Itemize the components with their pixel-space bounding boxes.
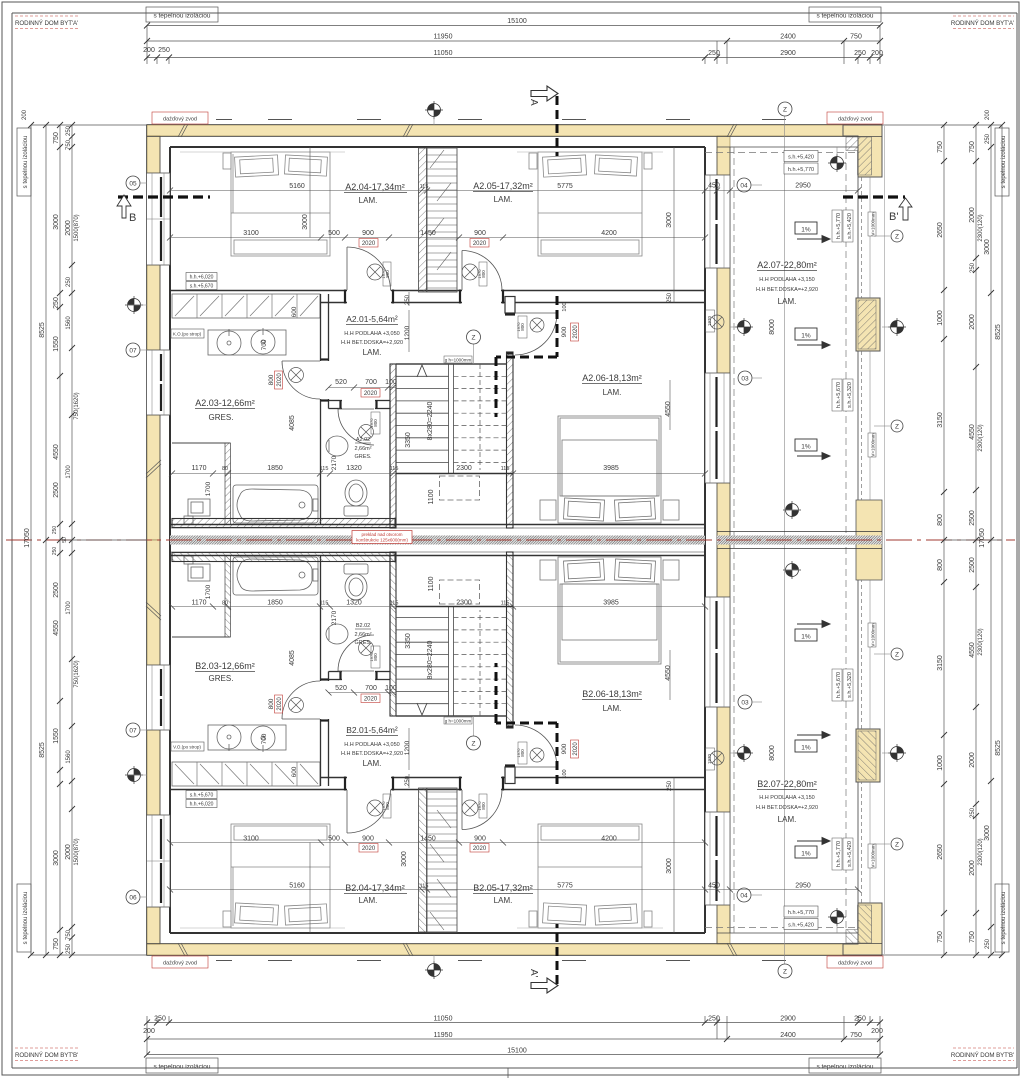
svg-text:B2.04-17,34m²: B2.04-17,34m² — [345, 883, 405, 893]
svg-text:4550: 4550 — [665, 665, 672, 681]
svg-text:RODINNÝ DOM BYT'A': RODINNÝ DOM BYT'A' — [15, 20, 78, 27]
svg-text:1%: 1% — [801, 333, 811, 340]
svg-text:1%: 1% — [801, 634, 811, 641]
svg-text:1450: 1450 — [420, 230, 436, 237]
svg-text:2170: 2170 — [331, 455, 338, 470]
svg-text:LAM.: LAM. — [359, 196, 378, 205]
svg-text:1970: 1970 — [381, 801, 386, 811]
svg-text:4200: 4200 — [601, 230, 617, 237]
svg-text:2400: 2400 — [780, 34, 796, 41]
svg-text:900: 900 — [362, 836, 374, 843]
svg-text:1970: 1970 — [516, 748, 521, 758]
svg-text:4085: 4085 — [289, 415, 296, 431]
svg-text:15100: 15100 — [507, 1048, 527, 1055]
svg-text:750: 750 — [937, 931, 944, 943]
svg-text:1700: 1700 — [66, 601, 72, 615]
svg-text:8x280=2240: 8x280=2240 — [427, 641, 434, 680]
svg-text:1850: 1850 — [267, 600, 283, 607]
svg-text:Z: Z — [895, 234, 899, 241]
svg-text:H.H BET.DOSKA=+2,920: H.H BET.DOSKA=+2,920 — [341, 340, 403, 346]
svg-text:RODINNÝ DOM BYT'B': RODINNÝ DOM BYT'B' — [951, 1052, 1014, 1059]
svg-text:200: 200 — [871, 1028, 883, 1035]
svg-text:1200: 1200 — [404, 325, 411, 340]
svg-text:3000: 3000 — [666, 858, 673, 874]
svg-text:200: 200 — [871, 50, 883, 57]
svg-text:3000: 3000 — [666, 212, 673, 228]
svg-text:4550: 4550 — [665, 401, 672, 417]
svg-text:B2.03-12,66m²: B2.03-12,66m² — [195, 661, 255, 671]
svg-text:250: 250 — [985, 133, 991, 144]
svg-text:2950: 2950 — [795, 183, 811, 190]
svg-text:s tepelnou izoláciou: s tepelnou izoláciou — [816, 13, 873, 20]
svg-text:1320: 1320 — [346, 600, 362, 607]
svg-text:900: 900 — [561, 326, 568, 337]
svg-text:4550: 4550 — [53, 444, 60, 460]
svg-text:3000: 3000 — [53, 214, 60, 230]
svg-text:2020: 2020 — [362, 241, 376, 247]
svg-text:2650: 2650 — [937, 844, 944, 860]
svg-text:2020: 2020 — [364, 697, 378, 703]
svg-text:1500(870): 1500(870) — [74, 838, 80, 865]
svg-text:900: 900 — [474, 230, 486, 237]
svg-text:A2.04-17,34m²: A2.04-17,34m² — [345, 182, 405, 192]
svg-text:250: 250 — [708, 1016, 720, 1023]
svg-text:s.h.+5,670: s.h.+5,670 — [190, 284, 214, 290]
svg-text:A2.06-18,13m²: A2.06-18,13m² — [582, 373, 642, 383]
svg-text:11050: 11050 — [434, 1016, 453, 1023]
svg-text:1970: 1970 — [369, 652, 374, 662]
svg-text:3000: 3000 — [984, 825, 991, 841]
svg-text:250: 250 — [854, 50, 866, 57]
svg-text:17050: 17050 — [24, 528, 31, 548]
svg-text:2000: 2000 — [65, 844, 72, 860]
svg-text:RODINNÝ DOM BYT'B': RODINNÝ DOM BYT'B' — [15, 1052, 78, 1059]
svg-text:200: 200 — [22, 109, 28, 120]
svg-text:s tepelnou izoláciou: s tepelnou izoláciou — [23, 892, 29, 945]
svg-text:s.h.+5,420: s.h.+5,420 — [788, 155, 814, 161]
svg-text:H.H BET.DOSKA=+2,920: H.H BET.DOSKA=+2,920 — [341, 751, 403, 757]
svg-text:450: 450 — [708, 883, 720, 890]
svg-text:1500(870): 1500(870) — [74, 214, 80, 241]
svg-text:2170: 2170 — [331, 610, 338, 625]
svg-text:2400: 2400 — [780, 1032, 796, 1039]
svg-text:11050: 11050 — [434, 50, 453, 57]
svg-text:V.O.(po strop): V.O.(po strop) — [173, 745, 201, 750]
svg-text:2020: 2020 — [473, 846, 487, 852]
svg-text:1850: 1850 — [267, 465, 283, 472]
svg-text:115: 115 — [320, 466, 329, 472]
svg-text:V=1000mm: V=1000mm — [871, 844, 876, 867]
svg-text:1550: 1550 — [53, 336, 60, 352]
svg-text:LAM.: LAM. — [494, 896, 513, 905]
svg-text:2650: 2650 — [937, 222, 944, 238]
svg-text:2020: 2020 — [362, 846, 376, 852]
svg-text:2300(120): 2300(120) — [978, 424, 984, 451]
svg-text:1700: 1700 — [205, 584, 212, 599]
svg-text:h.h.+5,770: h.h.+5,770 — [788, 167, 814, 173]
svg-text:4550: 4550 — [53, 620, 60, 636]
svg-text:800: 800 — [268, 374, 275, 385]
svg-text:100: 100 — [385, 685, 397, 692]
svg-text:Z: Z — [895, 842, 899, 849]
svg-text:520: 520 — [335, 685, 347, 692]
svg-text:8525: 8525 — [39, 322, 46, 338]
svg-text:900: 900 — [561, 743, 568, 754]
svg-text:11950: 11950 — [434, 1032, 453, 1039]
svg-text:5160: 5160 — [289, 883, 305, 890]
svg-text:5775: 5775 — [557, 883, 573, 890]
svg-text:H.H BET.DOSKA=+2,920: H.H BET.DOSKA=+2,920 — [756, 805, 818, 811]
svg-text:LAM.: LAM. — [494, 195, 513, 204]
svg-text:LAM.: LAM. — [778, 297, 797, 306]
svg-text:3985: 3985 — [603, 600, 619, 607]
svg-text:2020: 2020 — [277, 697, 283, 711]
svg-text:s.h.+5,320: s.h.+5,320 — [847, 382, 853, 408]
svg-text:2500: 2500 — [53, 582, 60, 598]
svg-text:2000: 2000 — [969, 752, 976, 768]
svg-text:Z: Z — [472, 741, 476, 748]
svg-text:8000: 8000 — [769, 319, 776, 335]
svg-text:A2.02: A2.02 — [356, 437, 370, 443]
svg-text:1100: 1100 — [428, 489, 435, 504]
svg-text:s tepelnou izoláciou: s tepelnou izoláciou — [153, 1064, 210, 1071]
svg-text:s tepelnou izoláciou: s tepelnou izoláciou — [1001, 892, 1007, 945]
svg-text:s tepelnou izoláciou: s tepelnou izoláciou — [816, 1064, 873, 1071]
svg-text:s tepelnou izoláciou: s tepelnou izoláciou — [1001, 136, 1007, 189]
svg-text:3100: 3100 — [243, 836, 259, 843]
svg-text:06: 06 — [129, 895, 137, 902]
svg-text:115: 115 — [501, 601, 510, 607]
svg-text:B2.02: B2.02 — [356, 623, 370, 629]
svg-text:A: A — [528, 99, 539, 106]
svg-text:2000: 2000 — [969, 314, 976, 330]
svg-text:konštrukcie 125x600(mm): konštrukcie 125x600(mm) — [356, 538, 408, 543]
svg-text:250: 250 — [66, 943, 72, 954]
svg-text:2000: 2000 — [65, 220, 72, 236]
svg-text:H.H PODLAHA +3,050: H.H PODLAHA +3,050 — [344, 742, 400, 748]
svg-text:h.h.+5,770: h.h.+5,770 — [836, 841, 842, 867]
svg-text:h.h.+5,670: h.h.+5,670 — [836, 382, 842, 408]
svg-text:200: 200 — [143, 1028, 155, 1035]
svg-text:3985: 3985 — [603, 465, 619, 472]
svg-text:1550: 1550 — [53, 728, 60, 744]
svg-text:900: 900 — [474, 836, 486, 843]
svg-text:250: 250 — [52, 547, 58, 556]
svg-text:h.h.+5,770: h.h.+5,770 — [836, 213, 842, 239]
svg-text:H.H PODLAHA +3,150: H.H PODLAHA +3,150 — [759, 795, 815, 801]
svg-text:2020: 2020 — [364, 391, 378, 397]
svg-text:g h=1000mm: g h=1000mm — [445, 358, 472, 363]
svg-text:2900: 2900 — [780, 50, 796, 57]
svg-text:V=1000mm: V=1000mm — [871, 433, 876, 456]
svg-text:GRES.: GRES. — [354, 454, 372, 460]
svg-text:8x280=2240: 8x280=2240 — [427, 402, 434, 441]
svg-text:07: 07 — [129, 348, 137, 355]
svg-text:250: 250 — [66, 125, 72, 136]
svg-text:GRES.: GRES. — [354, 640, 372, 646]
svg-text:3150: 3150 — [937, 655, 944, 671]
svg-text:3000: 3000 — [53, 850, 60, 866]
svg-text:A2.05-17,32m²: A2.05-17,32m² — [473, 181, 533, 191]
svg-text:750: 750 — [53, 132, 60, 144]
svg-text:2000: 2000 — [969, 860, 976, 876]
svg-text:2020: 2020 — [277, 373, 283, 387]
svg-text:1970: 1970 — [707, 315, 712, 326]
svg-text:1170: 1170 — [191, 600, 206, 607]
svg-text:LAM.: LAM. — [778, 815, 797, 824]
svg-text:2020: 2020 — [573, 325, 579, 339]
svg-text:500: 500 — [328, 230, 340, 237]
svg-text:750(1620): 750(1620) — [74, 392, 80, 419]
svg-text:1700: 1700 — [205, 481, 212, 496]
svg-text:2300(120): 2300(120) — [978, 214, 984, 241]
svg-text:700: 700 — [365, 685, 377, 692]
svg-text:LAM.: LAM. — [359, 896, 378, 905]
svg-text:LAM.: LAM. — [603, 388, 622, 397]
svg-text:h.h.+5,770: h.h.+5,770 — [788, 910, 814, 916]
svg-text:700: 700 — [365, 379, 377, 386]
svg-text:80: 80 — [222, 466, 228, 472]
svg-text:250: 250 — [52, 526, 58, 535]
svg-text:daźďový zvod: daźďový zvod — [838, 961, 872, 967]
svg-text:daźďový zvod: daźďový zvod — [163, 117, 197, 123]
svg-text:B2.06-18,13m²: B2.06-18,13m² — [582, 689, 642, 699]
svg-text:s.h.+5,670: s.h.+5,670 — [190, 793, 214, 799]
svg-text:Z: Z — [783, 107, 787, 114]
svg-text:2500: 2500 — [969, 557, 976, 573]
svg-text:250: 250 — [667, 292, 673, 303]
svg-text:s tepelnou izoláciou: s tepelnou izoláciou — [153, 13, 210, 20]
svg-text:1970: 1970 — [477, 801, 482, 811]
svg-text:s.h.+5,420: s.h.+5,420 — [788, 923, 814, 929]
svg-text:2300: 2300 — [456, 465, 472, 472]
svg-text:LAM.: LAM. — [363, 759, 382, 768]
svg-text:750: 750 — [53, 938, 60, 950]
svg-text:h.h.+5,670: h.h.+5,670 — [836, 672, 842, 698]
svg-text:s.h.+5,420: s.h.+5,420 — [847, 841, 853, 867]
svg-text:8525: 8525 — [995, 740, 1002, 756]
svg-text:LAM.: LAM. — [363, 348, 382, 357]
svg-text:GRES.: GRES. — [209, 674, 234, 683]
svg-text:3000: 3000 — [984, 239, 991, 255]
svg-text:2500: 2500 — [969, 510, 976, 526]
svg-text:B2.07-22,80m²: B2.07-22,80m² — [757, 779, 817, 789]
svg-text:100: 100 — [385, 379, 397, 386]
svg-text:115: 115 — [320, 601, 329, 607]
svg-text:600: 600 — [291, 306, 298, 317]
svg-text:RODINNÝ DOM BYT'A': RODINNÝ DOM BYT'A' — [951, 20, 1014, 27]
svg-text:250: 250 — [708, 50, 720, 57]
svg-text:Z: Z — [783, 969, 787, 976]
svg-text:V=1000mm: V=1000mm — [871, 623, 876, 646]
svg-text:B: B — [129, 212, 136, 224]
svg-text:2,66m²: 2,66m² — [354, 446, 371, 452]
svg-text:H.H PODLAHA +3,050: H.H PODLAHA +3,050 — [344, 331, 400, 337]
svg-text:115: 115 — [501, 466, 510, 472]
svg-text:03: 03 — [741, 700, 749, 707]
svg-text:3100: 3100 — [243, 230, 259, 237]
svg-text:H.H BET.DOSKA=+2,920: H.H BET.DOSKA=+2,920 — [756, 287, 818, 293]
svg-text:800: 800 — [937, 559, 944, 571]
svg-text:250: 250 — [667, 780, 673, 791]
svg-text:05: 05 — [129, 181, 137, 188]
svg-text:s.h.+5,320: s.h.+5,320 — [847, 672, 853, 698]
svg-text:s tepelnou izoláciou: s tepelnou izoláciou — [23, 136, 29, 189]
svg-text:1100: 1100 — [428, 576, 435, 591]
svg-text:h.h.+6,020: h.h.+6,020 — [190, 275, 214, 281]
svg-text:450: 450 — [708, 183, 720, 190]
svg-text:750: 750 — [937, 141, 944, 153]
svg-text:preklad nad otvorom: preklad nad otvorom — [361, 532, 402, 537]
svg-text:2300(120): 2300(120) — [978, 838, 984, 865]
svg-text:2300: 2300 — [456, 600, 472, 607]
svg-text:250: 250 — [53, 297, 60, 309]
svg-text:250: 250 — [985, 938, 991, 949]
svg-text:115: 115 — [420, 884, 429, 890]
svg-text:07: 07 — [129, 728, 137, 735]
svg-text:5775: 5775 — [557, 183, 573, 190]
svg-text:04: 04 — [740, 893, 748, 900]
svg-text:1970: 1970 — [477, 269, 482, 279]
svg-text:4550: 4550 — [969, 642, 976, 658]
svg-text:2900: 2900 — [780, 1016, 796, 1023]
svg-text:H.H PODLAHA +3,150: H.H PODLAHA +3,150 — [759, 277, 815, 283]
svg-text:1970: 1970 — [516, 322, 521, 332]
svg-text:03: 03 — [741, 376, 749, 383]
svg-text:8000: 8000 — [769, 745, 776, 761]
svg-text:1560: 1560 — [66, 316, 72, 330]
svg-text:V=1000mm: V=1000mm — [871, 212, 876, 235]
svg-text:800: 800 — [937, 514, 944, 526]
svg-text:g h=1000mm: g h=1000mm — [445, 719, 472, 724]
svg-text:GRES.: GRES. — [209, 413, 234, 422]
svg-text:A': A' — [528, 969, 539, 978]
svg-text:500: 500 — [328, 836, 340, 843]
svg-text:115: 115 — [420, 184, 429, 190]
svg-text:1170: 1170 — [191, 465, 206, 472]
svg-text:8525: 8525 — [39, 742, 46, 758]
svg-text:K.O.(po strop): K.O.(po strop) — [173, 332, 202, 337]
svg-text:3000: 3000 — [302, 214, 309, 230]
svg-text:250: 250 — [970, 807, 976, 818]
svg-text:1970: 1970 — [369, 418, 374, 428]
svg-text:750: 750 — [850, 34, 862, 41]
svg-text:8525: 8525 — [995, 324, 1002, 340]
svg-text:A2.03-12,66m²: A2.03-12,66m² — [195, 398, 255, 408]
svg-text:80: 80 — [222, 601, 228, 607]
svg-text:B2.01-5,64m²: B2.01-5,64m² — [346, 725, 398, 735]
svg-text:3000: 3000 — [401, 851, 408, 867]
svg-text:4200: 4200 — [601, 836, 617, 843]
svg-text:1%: 1% — [801, 745, 811, 752]
svg-text:Z: Z — [895, 424, 899, 431]
svg-text:2000: 2000 — [969, 207, 976, 223]
svg-text:04: 04 — [740, 183, 748, 190]
svg-text:LAM.: LAM. — [603, 704, 622, 713]
svg-text:Z: Z — [472, 335, 476, 342]
svg-text:750(1620): 750(1620) — [74, 660, 80, 687]
svg-text:750: 750 — [850, 1032, 862, 1039]
svg-text:2500: 2500 — [53, 482, 60, 498]
svg-text:17050: 17050 — [979, 528, 986, 548]
svg-text:Z: Z — [895, 652, 899, 659]
svg-text:B': B' — [889, 211, 898, 223]
svg-text:250: 250 — [405, 294, 411, 305]
svg-text:2,66m²: 2,66m² — [354, 632, 371, 638]
svg-text:50: 50 — [62, 537, 68, 543]
svg-text:1200: 1200 — [404, 740, 411, 755]
svg-text:1450: 1450 — [420, 836, 436, 843]
svg-text:1000: 1000 — [937, 310, 944, 326]
svg-text:750: 750 — [969, 141, 976, 153]
svg-text:600: 600 — [291, 766, 298, 777]
svg-text:1%: 1% — [801, 444, 811, 451]
svg-text:1970: 1970 — [707, 753, 712, 764]
svg-text:4550: 4550 — [969, 424, 976, 440]
svg-text:s.h.+5,420: s.h.+5,420 — [847, 213, 853, 239]
svg-text:A2.07-22,80m²: A2.07-22,80m² — [757, 260, 817, 270]
svg-text:3150: 3150 — [937, 412, 944, 428]
svg-text:daźďový zvod: daźďový zvod — [163, 961, 197, 967]
svg-text:A2.01-5,64m²: A2.01-5,64m² — [346, 314, 398, 324]
svg-text:B2.05-17,32m²: B2.05-17,32m² — [473, 883, 533, 893]
svg-text:700: 700 — [261, 339, 268, 350]
svg-text:800: 800 — [268, 698, 275, 709]
svg-text:h.h.+6,020: h.h.+6,020 — [190, 802, 214, 808]
svg-text:750: 750 — [66, 139, 72, 150]
svg-text:200: 200 — [985, 109, 991, 120]
svg-text:250: 250 — [854, 1016, 866, 1023]
svg-text:2020: 2020 — [473, 241, 487, 247]
svg-text:daźďový zvod: daźďový zvod — [838, 117, 872, 123]
svg-text:520: 520 — [335, 379, 347, 386]
svg-text:2950: 2950 — [795, 883, 811, 890]
svg-text:250: 250 — [970, 262, 976, 273]
svg-text:115: 115 — [390, 601, 399, 607]
svg-text:1970: 1970 — [381, 269, 386, 279]
svg-text:900: 900 — [362, 230, 374, 237]
svg-text:100: 100 — [562, 302, 568, 311]
svg-text:3350: 3350 — [405, 633, 412, 649]
svg-text:250: 250 — [66, 276, 72, 287]
svg-text:1700: 1700 — [66, 465, 72, 479]
svg-text:2020: 2020 — [573, 742, 579, 756]
svg-text:1560: 1560 — [66, 750, 72, 764]
svg-text:2300(120): 2300(120) — [978, 628, 984, 655]
svg-text:200: 200 — [143, 47, 155, 54]
svg-text:1320: 1320 — [346, 465, 362, 472]
svg-text:750: 750 — [66, 929, 72, 940]
svg-text:250: 250 — [158, 47, 170, 54]
svg-text:250: 250 — [154, 1016, 166, 1023]
svg-text:250: 250 — [405, 775, 411, 786]
svg-text:1%: 1% — [801, 227, 811, 234]
svg-text:100: 100 — [562, 769, 568, 778]
svg-text:700: 700 — [261, 733, 268, 744]
svg-text:750: 750 — [969, 931, 976, 943]
svg-text:3350: 3350 — [405, 432, 412, 448]
svg-text:15100: 15100 — [507, 18, 527, 25]
svg-text:4085: 4085 — [289, 650, 296, 666]
svg-text:1%: 1% — [801, 851, 811, 858]
svg-text:115: 115 — [390, 466, 399, 472]
svg-text:11950: 11950 — [434, 34, 453, 41]
svg-text:5160: 5160 — [289, 183, 305, 190]
svg-text:1000: 1000 — [937, 755, 944, 771]
